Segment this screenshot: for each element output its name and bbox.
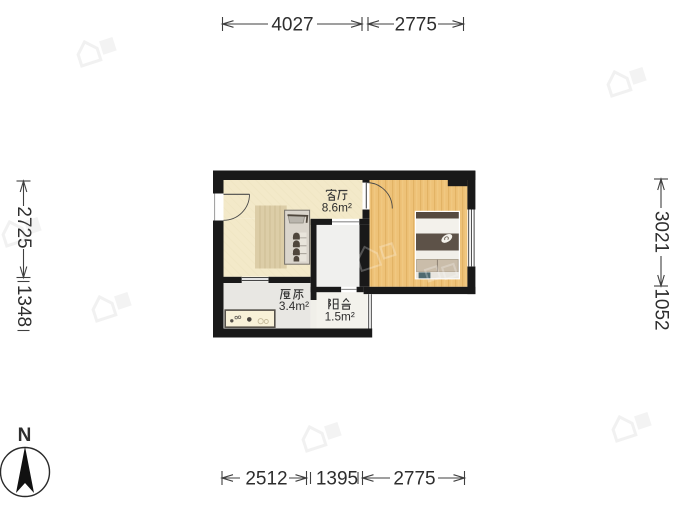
svg-text:8.6m²: 8.6m² (322, 201, 352, 215)
svg-text:3021: 3021 (651, 211, 672, 253)
svg-text:4027: 4027 (271, 15, 313, 36)
svg-text:N: N (18, 425, 32, 446)
svg-text:1348: 1348 (13, 285, 34, 327)
svg-text:2775: 2775 (393, 469, 435, 490)
svg-text:1.5m²: 1.5m² (325, 309, 355, 323)
svg-text:2512: 2512 (245, 469, 287, 490)
svg-text:2775: 2775 (395, 15, 437, 36)
svg-text:1052: 1052 (651, 288, 672, 330)
svg-text:3.4m²: 3.4m² (279, 299, 309, 313)
svg-text:1395: 1395 (316, 469, 358, 490)
